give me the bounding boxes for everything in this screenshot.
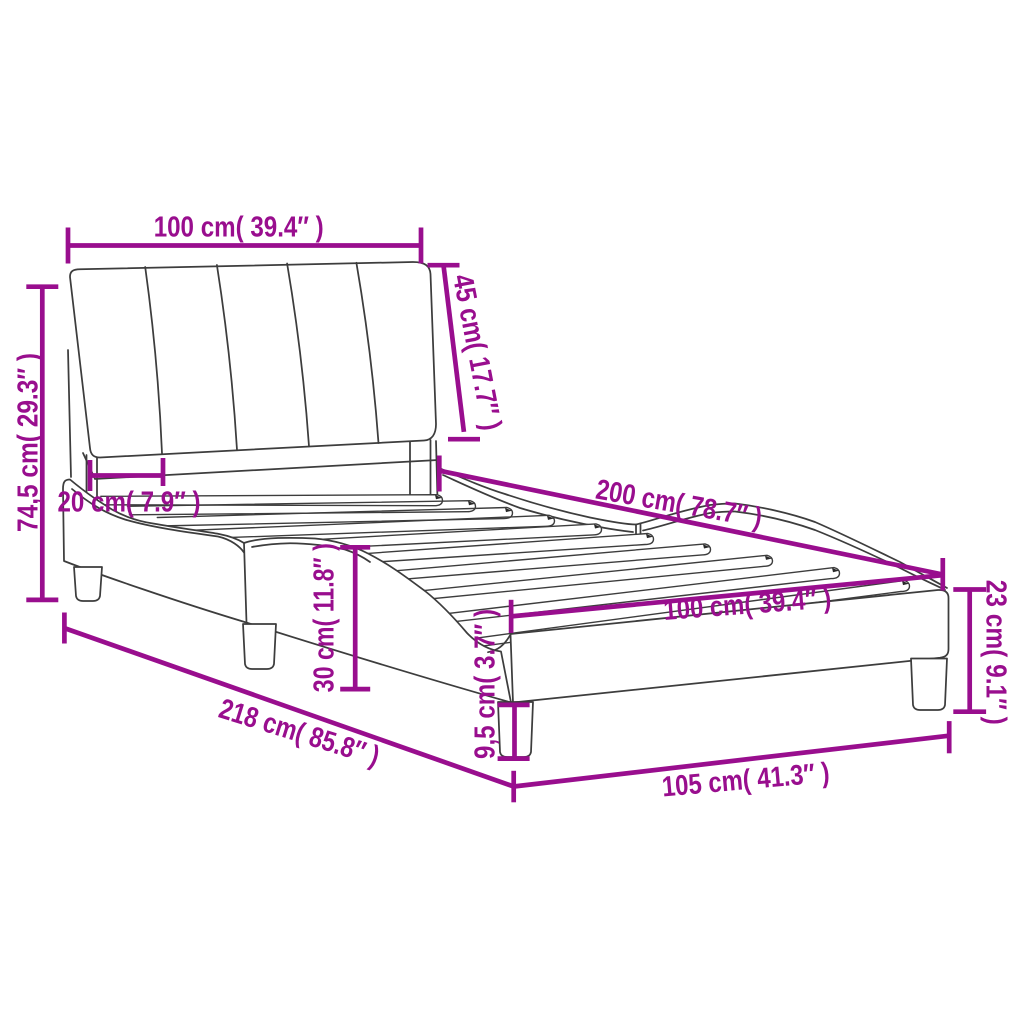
svg-text:100 cm( 39.4″ ): 100 cm( 39.4″ ) (154, 212, 324, 244)
svg-text:23 cm( 9.1″ ): 23 cm( 9.1″ ) (980, 580, 1012, 725)
svg-text:30 cm( 11.8″ ): 30 cm( 11.8″ ) (309, 543, 341, 692)
svg-text:74,5 cm( 29.3″ ): 74,5 cm( 29.3″ ) (13, 353, 45, 532)
svg-text:9,5 cm( 3.7″ ): 9,5 cm( 3.7″ ) (470, 609, 502, 759)
svg-text:20 cm( 7.9″ ): 20 cm( 7.9″ ) (58, 487, 201, 519)
